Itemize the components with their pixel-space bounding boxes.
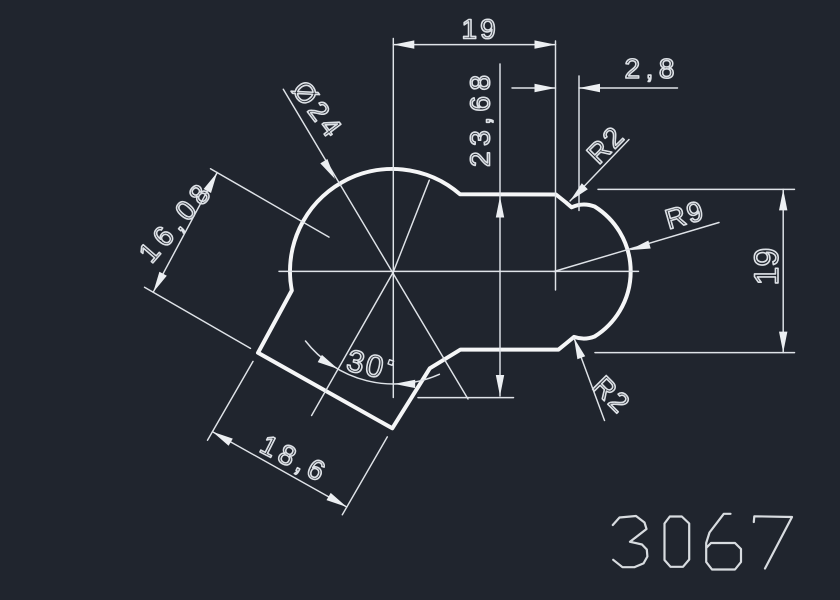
svg-text:19: 19	[462, 14, 499, 45]
svg-text:23,68: 23,68	[465, 69, 496, 167]
svg-text:2,8: 2,8	[625, 53, 680, 84]
svg-text:19: 19	[748, 248, 786, 286]
